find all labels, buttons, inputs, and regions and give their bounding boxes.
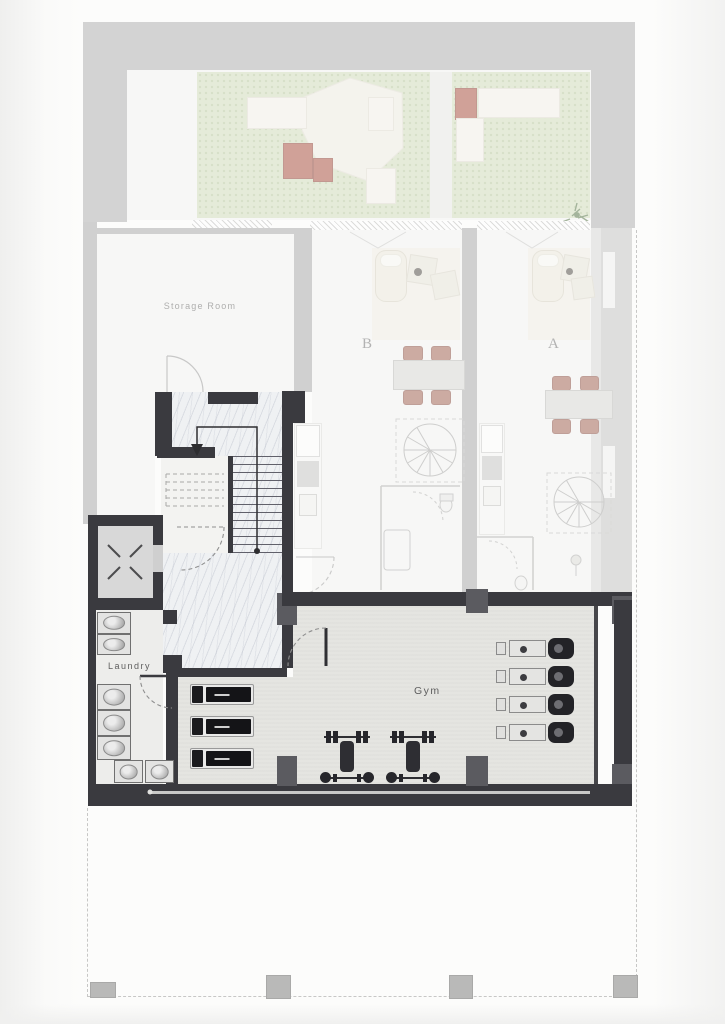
storage-room-label: Storage Room — [148, 301, 252, 311]
stair-rail — [228, 456, 233, 553]
dining-chair — [580, 376, 599, 391]
bottom-window-line — [150, 791, 590, 794]
dining-chair — [552, 419, 571, 434]
laundry-wall-stub — [163, 610, 177, 624]
wall-column — [277, 756, 297, 786]
fridge — [481, 425, 503, 453]
washing-machine-icon — [114, 760, 143, 783]
gym-wall-bottom — [88, 784, 632, 806]
window-gap — [603, 446, 615, 498]
unit-a-sofa — [571, 276, 596, 301]
exercise-bike-icon — [496, 667, 574, 686]
garden-sofa-row — [247, 97, 307, 129]
treadmill-icon — [190, 748, 254, 769]
unit-a-label: A — [548, 336, 559, 353]
exercise-bike-icon — [496, 639, 574, 658]
outer-wall-top — [83, 22, 635, 70]
washing-machine-icon — [97, 710, 131, 736]
window-frame — [594, 606, 598, 784]
washing-machine-icon — [145, 760, 174, 783]
side-table — [566, 268, 573, 275]
pillow — [380, 254, 402, 267]
wall-column — [282, 391, 305, 423]
laundry-wall-stub — [163, 655, 182, 673]
lobby-floor — [161, 553, 282, 668]
unit-divider-wall — [462, 228, 477, 592]
sink — [483, 486, 501, 506]
hallway-floor — [97, 392, 155, 524]
dining-chair — [403, 390, 423, 405]
unit-a-dining-table — [545, 390, 613, 419]
elevator-cab-floor — [98, 526, 153, 598]
fridge — [296, 425, 320, 457]
lobby-wall — [208, 392, 258, 404]
boundary-pier — [449, 975, 473, 999]
washing-machine-icon — [97, 612, 131, 634]
unit-b-dining-table — [393, 360, 465, 390]
garden-sofa-row — [478, 88, 560, 118]
unit-b-sofa — [430, 270, 460, 300]
planter — [313, 158, 333, 182]
faded-wall-left — [83, 222, 97, 524]
stair-void — [161, 456, 228, 553]
weight-bench-icon — [320, 728, 374, 786]
dining-chair — [552, 376, 571, 391]
lobby-wall-right — [282, 423, 293, 668]
washing-machine-icon — [97, 684, 131, 710]
boundary-pier — [266, 975, 291, 999]
lobby-gym-wall — [178, 668, 287, 677]
gym-wall-top — [282, 592, 632, 606]
pillow — [537, 254, 559, 267]
garden-divider-wall — [430, 72, 452, 218]
boundary-line-right — [636, 230, 637, 997]
exercise-bike-icon — [496, 695, 574, 714]
window-sill — [310, 221, 462, 230]
elevator-wall — [88, 598, 163, 610]
boundary-line-bottom — [88, 996, 637, 997]
planter — [283, 143, 313, 179]
dining-chair — [431, 346, 451, 361]
window-gap — [603, 252, 615, 308]
boundary-line-left — [87, 808, 88, 997]
wall-column — [466, 589, 488, 613]
washing-machine-icon — [97, 634, 131, 655]
outer-wall-left — [83, 22, 127, 222]
garden-seat — [366, 168, 396, 204]
stair-wall — [157, 447, 215, 458]
dining-chair — [580, 419, 599, 434]
gym-label: Gym — [414, 685, 441, 697]
washing-machine-icon — [97, 736, 131, 760]
boundary-pier — [613, 975, 638, 998]
window-sill — [477, 221, 590, 230]
storage-room-floor — [97, 234, 294, 392]
elevator-wall — [88, 515, 98, 610]
wall-column — [466, 756, 488, 786]
stove — [297, 461, 319, 487]
staircase — [228, 456, 282, 553]
treadmill-icon — [190, 716, 254, 737]
elevator-wall — [153, 515, 163, 545]
unit-b-wall-left — [306, 228, 312, 392]
elevator-wall — [88, 515, 163, 526]
side-table — [414, 268, 422, 276]
garden-seat — [368, 97, 394, 131]
laundry-wall-left — [88, 610, 96, 784]
elevator-wall — [153, 572, 163, 610]
boundary-pier — [90, 982, 116, 998]
treadmill-icon — [190, 684, 254, 705]
dining-chair — [431, 390, 451, 405]
outer-wall-right — [591, 22, 635, 228]
exercise-bike-icon — [496, 723, 574, 742]
faded-upper-floor-overlay: Storage Room — [0, 0, 725, 1024]
planter — [455, 88, 477, 120]
weight-bench-icon — [386, 728, 440, 786]
sink — [299, 494, 317, 516]
unit-b-label: B — [362, 336, 372, 353]
storage-wall-right — [294, 228, 306, 392]
laundry-label: Laundry — [108, 661, 151, 671]
stove — [482, 456, 502, 480]
dining-chair — [403, 346, 423, 361]
garden-seat — [456, 118, 484, 162]
elevator-door — [153, 545, 163, 572]
floor-plan: Storage Room — [0, 0, 725, 1024]
